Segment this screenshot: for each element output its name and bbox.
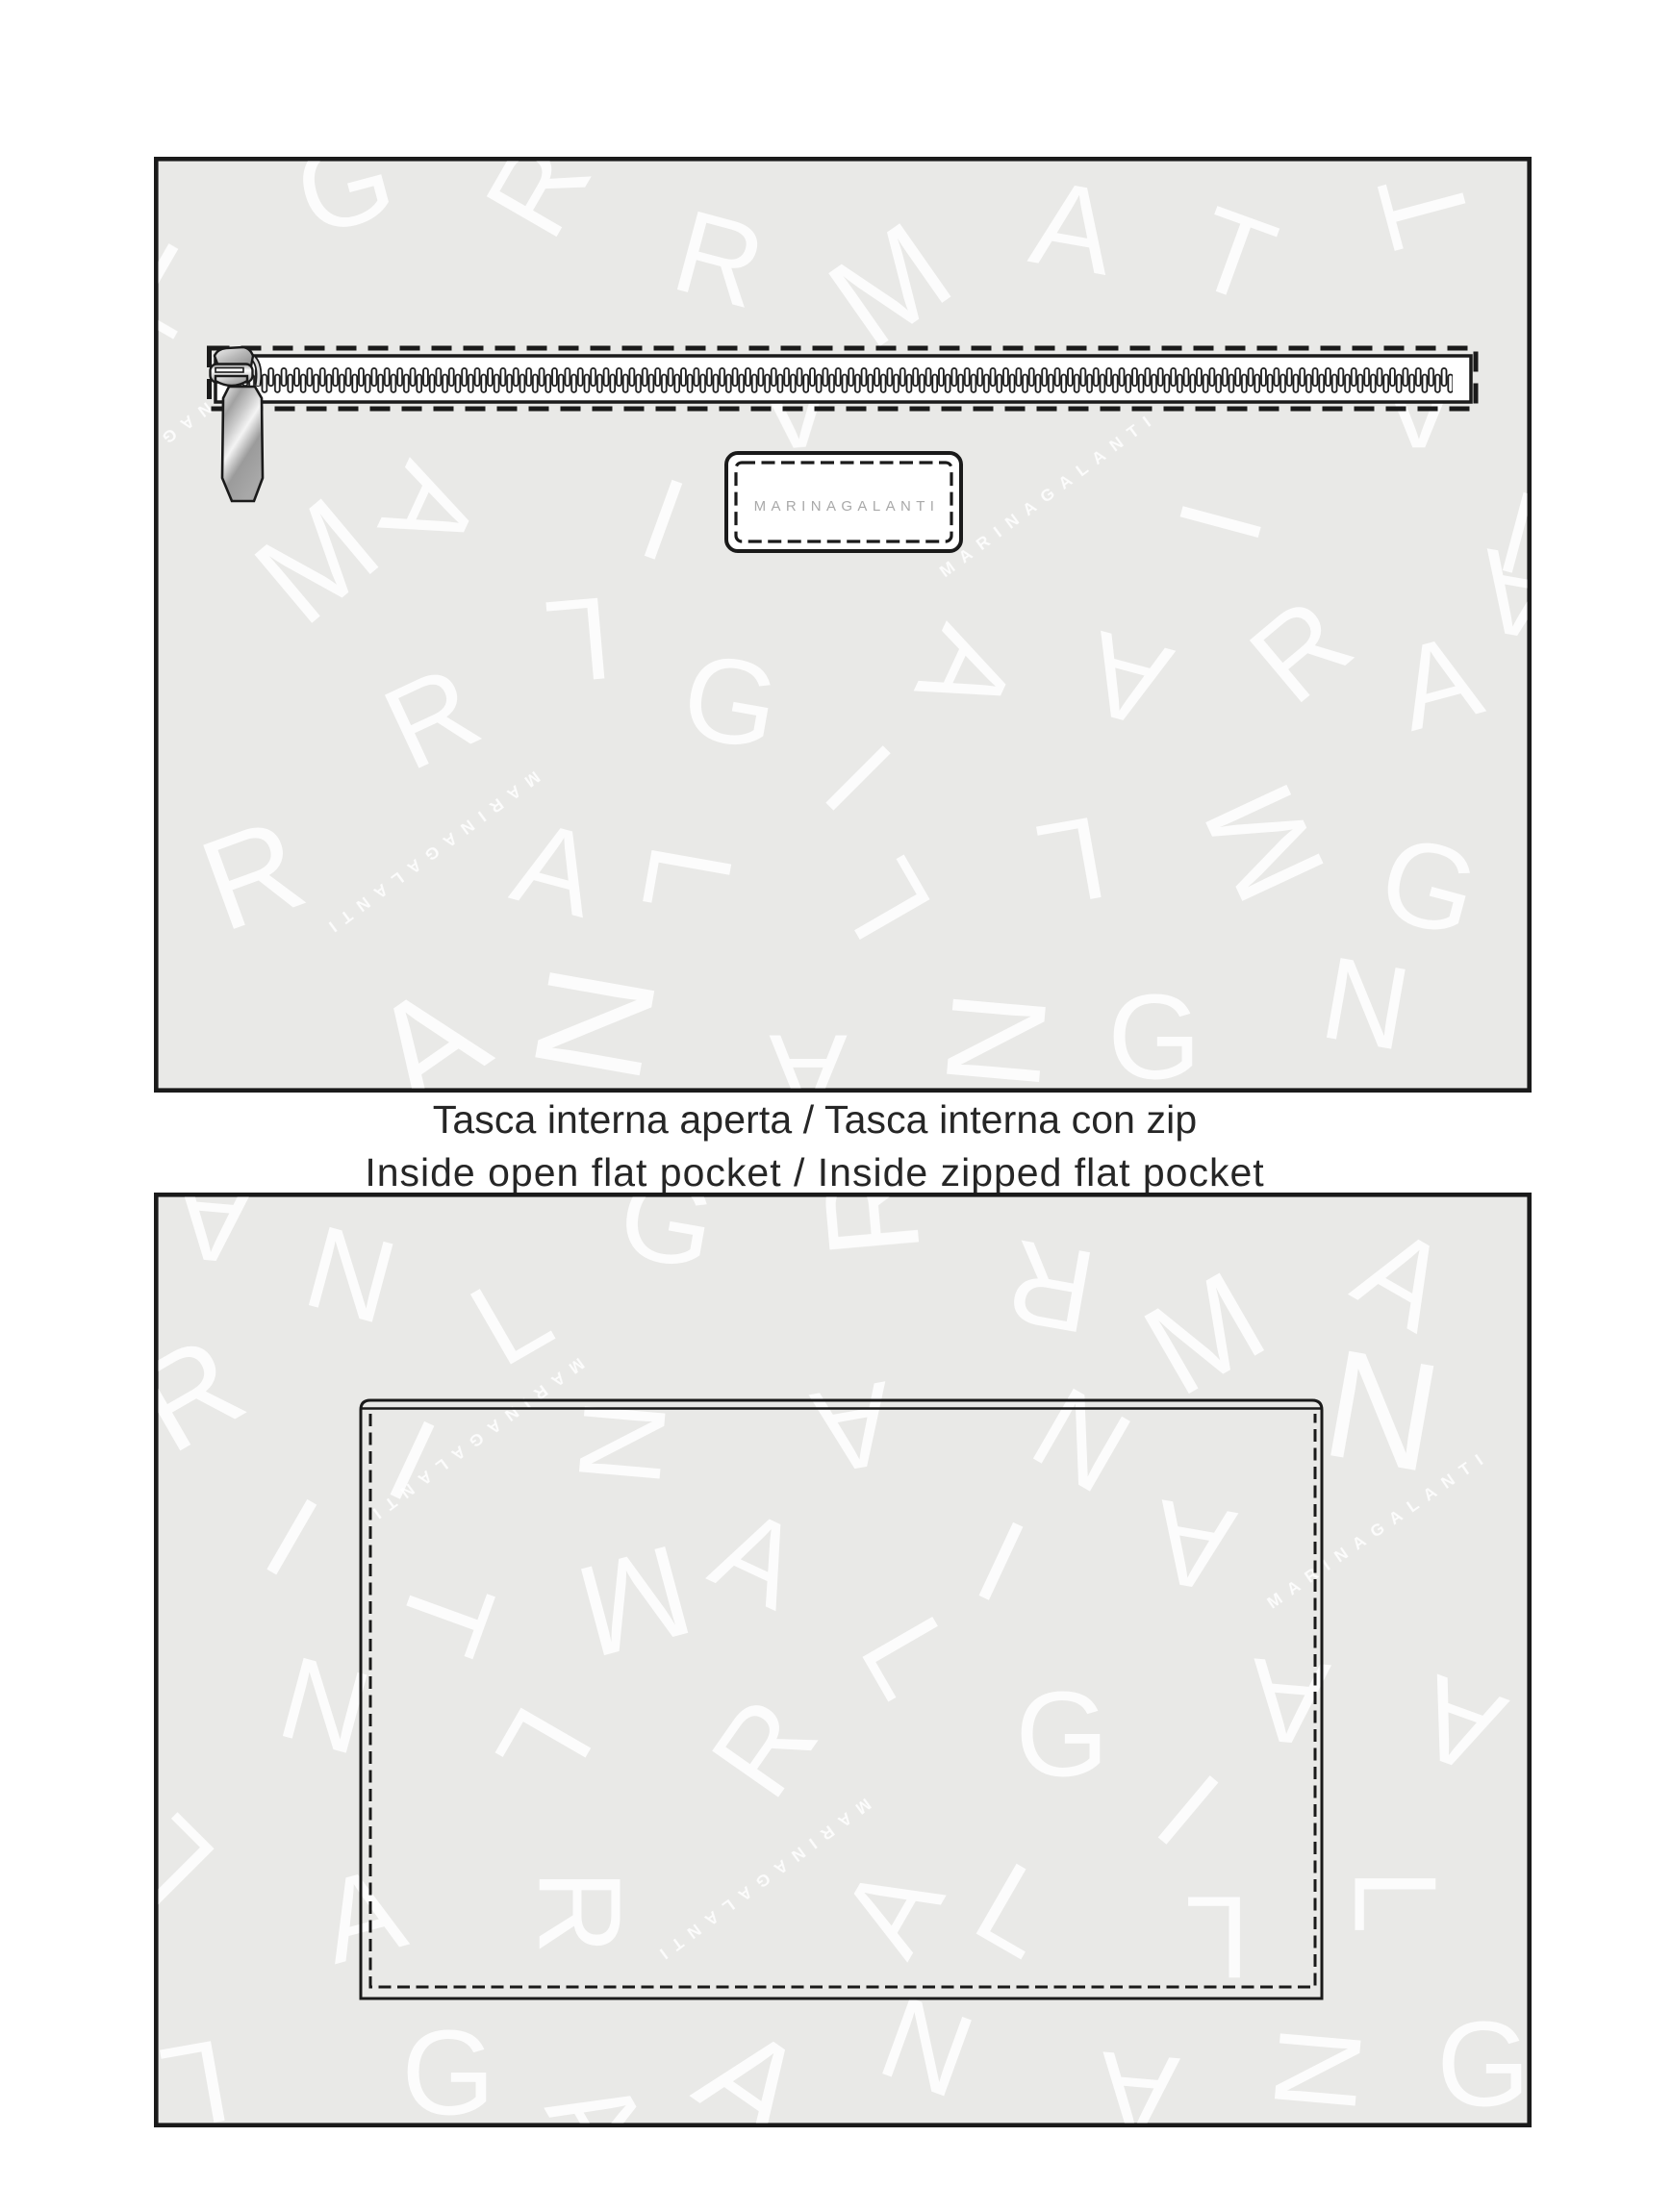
svg-text:A: A <box>168 1193 259 1289</box>
svg-text:G: G <box>1107 970 1201 1093</box>
svg-text:A: A <box>769 1011 848 1093</box>
svg-text:L: L <box>1184 1873 1250 2003</box>
svg-text:A: A <box>1093 2026 1183 2127</box>
svg-text:R: R <box>795 1193 948 1263</box>
svg-text:R: R <box>515 1870 646 1954</box>
svg-text:G: G <box>401 2006 494 2127</box>
svg-text:L: L <box>1330 1869 1461 1934</box>
svg-text:L: L <box>540 572 616 708</box>
svg-text:MARINAGALANTI: MARINAGALANTI <box>754 498 940 515</box>
svg-text:G: G <box>1436 1998 1530 2127</box>
svg-text:N: N <box>917 986 1076 1093</box>
svg-text:N: N <box>1249 2022 1386 2118</box>
svg-text:G: G <box>1015 1668 1108 1801</box>
